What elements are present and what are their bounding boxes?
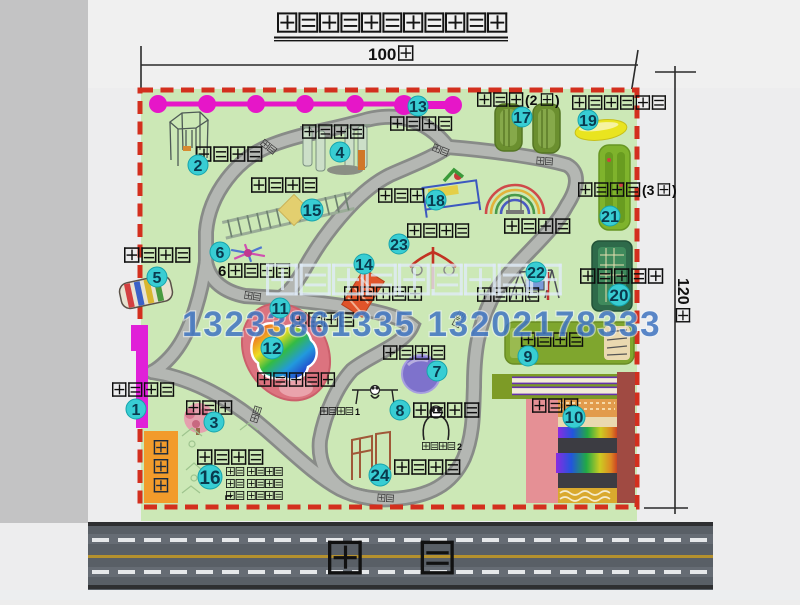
- svg-text:7: 7: [433, 364, 442, 381]
- svg-text:4: 4: [336, 145, 345, 162]
- svg-text:11: 11: [272, 301, 289, 318]
- svg-text:21: 21: [601, 209, 619, 226]
- svg-text:24: 24: [371, 466, 390, 485]
- svg-text:14: 14: [355, 257, 373, 274]
- svg-text:2: 2: [194, 158, 203, 175]
- svg-text:120: 120: [674, 278, 691, 305]
- svg-text:): ): [555, 92, 560, 108]
- svg-text:13233861335 13202178333: 13233861335 13202178333: [182, 305, 661, 344]
- svg-text:16: 16: [199, 468, 220, 489]
- svg-text:6: 6: [218, 263, 226, 280]
- svg-text:3: 3: [210, 415, 219, 432]
- svg-text:1: 1: [355, 407, 360, 417]
- svg-text:8: 8: [396, 403, 405, 420]
- svg-text:20: 20: [610, 286, 629, 305]
- svg-text:100: 100: [368, 45, 396, 64]
- svg-text:9: 9: [524, 349, 533, 366]
- svg-text:13: 13: [409, 99, 427, 116]
- svg-text:): ): [672, 182, 677, 198]
- svg-text:2: 2: [457, 442, 462, 452]
- svg-text:(3: (3: [642, 182, 655, 198]
- svg-text:18: 18: [427, 193, 445, 210]
- svg-text:17: 17: [513, 110, 531, 127]
- svg-text:10: 10: [565, 408, 584, 427]
- svg-text:15: 15: [303, 201, 322, 220]
- svg-text:19: 19: [579, 113, 597, 130]
- svg-text:5: 5: [153, 270, 162, 287]
- svg-text:12: 12: [263, 339, 282, 358]
- svg-text:23: 23: [390, 237, 408, 254]
- svg-text:6: 6: [216, 245, 225, 262]
- svg-text:22: 22: [527, 265, 545, 282]
- svg-text:(2: (2: [525, 92, 538, 108]
- svg-text:1: 1: [132, 402, 141, 419]
